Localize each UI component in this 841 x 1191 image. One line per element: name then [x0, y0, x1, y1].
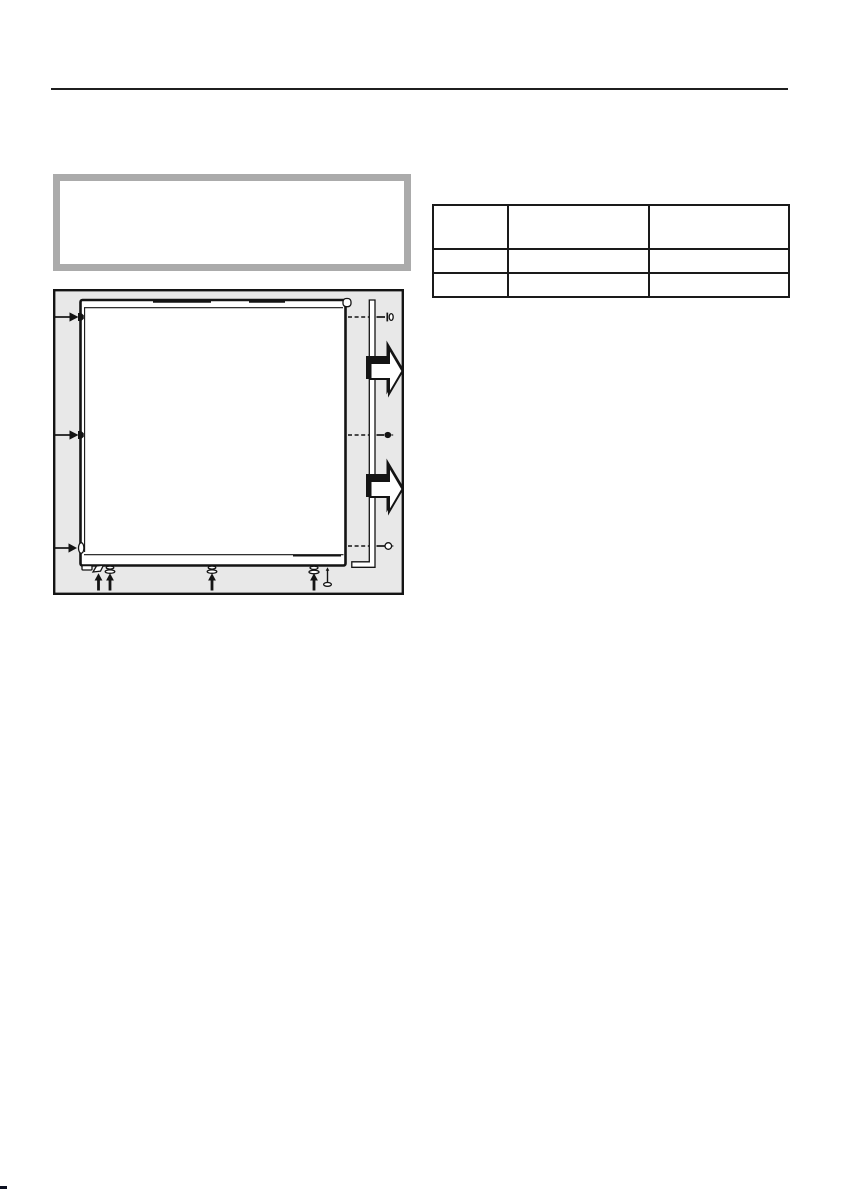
- spec-table: [432, 204, 790, 298]
- corner-registration-mark: [0, 1186, 7, 1189]
- table-row: [433, 273, 789, 297]
- callout-box: [53, 174, 411, 271]
- spec-cell: [433, 273, 508, 297]
- lid-end-cap: [343, 299, 351, 307]
- table-row: [433, 205, 789, 249]
- spec-cell: [649, 249, 789, 273]
- installation-figure: [53, 289, 404, 595]
- hinge-pin-icon: [79, 543, 84, 554]
- spec-cell: [433, 205, 508, 249]
- manual-page: { "colors": { "page-bg": "#ffffff", "ink…: [0, 0, 841, 1191]
- installation-figure-svg: [53, 289, 404, 595]
- table-row: [433, 249, 789, 273]
- spec-cell: [508, 273, 649, 297]
- header-rule: [51, 88, 788, 90]
- spec-cell: [508, 205, 649, 249]
- corner-tab: [82, 566, 92, 570]
- spec-cell: [649, 205, 789, 249]
- side-panel: [81, 299, 352, 571]
- spec-cell: [433, 249, 508, 273]
- spec-cell: [649, 273, 789, 297]
- callout-text: [60, 181, 404, 264]
- spec-cell: [508, 249, 649, 273]
